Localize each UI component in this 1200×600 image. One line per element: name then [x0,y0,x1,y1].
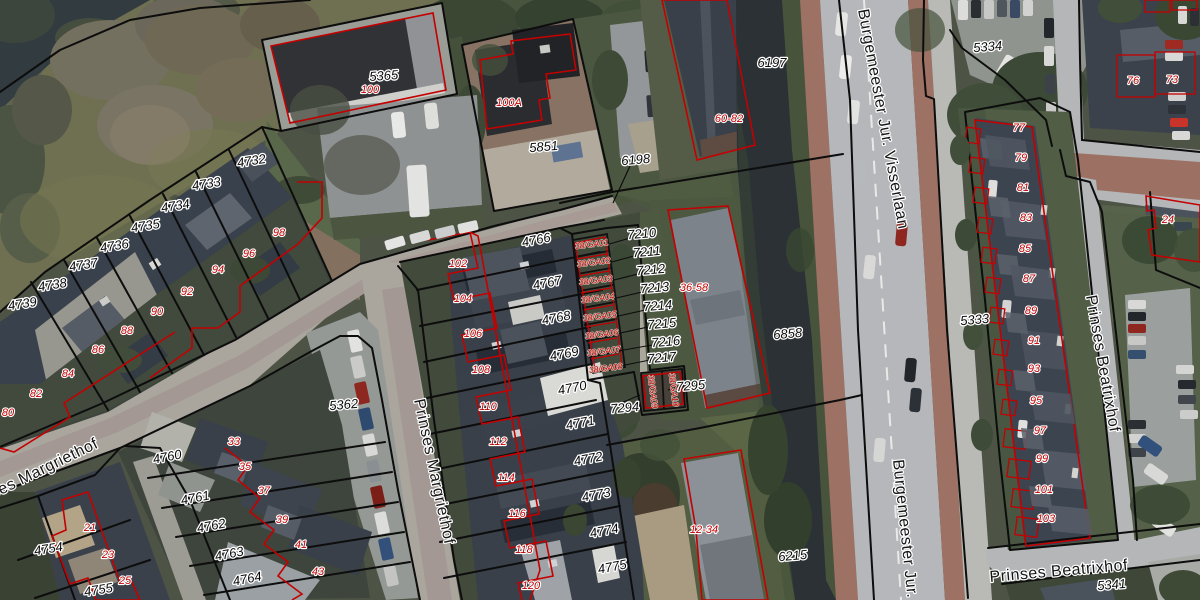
svg-text:5334: 5334 [973,38,1003,55]
svg-text:35: 35 [239,461,252,473]
svg-text:23: 23 [101,549,115,561]
svg-text:81: 81 [1017,182,1029,194]
svg-text:83: 83 [1020,212,1033,224]
svg-text:120: 120 [522,580,541,592]
svg-text:33: 33 [228,436,241,448]
svg-text:36-58: 36-58 [680,282,709,294]
svg-text:87: 87 [1023,273,1036,285]
svg-text:95: 95 [1030,395,1043,407]
svg-text:116: 116 [508,508,526,520]
svg-text:7212: 7212 [636,261,667,279]
svg-text:21: 21 [83,522,96,534]
svg-text:97: 97 [1034,425,1047,437]
svg-text:7216: 7216 [651,333,682,351]
svg-text:24: 24 [1161,214,1174,226]
svg-text:6197: 6197 [758,55,788,70]
svg-text:5365: 5365 [369,67,400,84]
svg-text:7294: 7294 [610,399,640,416]
svg-text:102: 102 [449,258,467,270]
svg-text:91: 91 [1028,335,1040,347]
svg-text:7215: 7215 [647,315,678,333]
svg-text:60-82: 60-82 [715,113,743,125]
svg-text:90: 90 [151,306,164,318]
svg-text:104: 104 [454,293,472,305]
svg-text:99: 99 [1036,453,1048,465]
svg-text:73: 73 [1166,74,1179,86]
svg-text:100A: 100A [496,97,522,109]
svg-text:41: 41 [295,539,307,551]
svg-text:5341: 5341 [1097,576,1127,593]
svg-text:7214: 7214 [643,297,673,314]
svg-text:94: 94 [212,264,224,276]
svg-text:106: 106 [464,328,483,340]
svg-text:43: 43 [312,566,325,578]
svg-text:39: 39 [276,514,288,526]
svg-text:110: 110 [479,401,497,413]
svg-text:92: 92 [181,286,193,298]
svg-text:84: 84 [62,368,74,380]
svg-text:5851: 5851 [529,138,559,155]
svg-text:118: 118 [515,544,533,556]
svg-text:7217: 7217 [647,349,678,367]
svg-text:12-34: 12-34 [690,524,718,536]
svg-text:85: 85 [1019,243,1032,255]
svg-text:88: 88 [121,325,134,337]
svg-text:37: 37 [258,485,271,497]
svg-text:7210: 7210 [627,225,658,243]
svg-text:25: 25 [118,575,132,587]
svg-text:5333: 5333 [960,311,991,329]
svg-text:82: 82 [30,388,42,400]
svg-text:7211: 7211 [632,243,661,260]
svg-text:77: 77 [1013,122,1026,134]
svg-text:89: 89 [1025,305,1037,317]
svg-text:6858: 6858 [773,325,804,343]
svg-text:6198: 6198 [621,151,652,169]
svg-text:96: 96 [243,248,256,260]
svg-text:80: 80 [2,407,15,419]
svg-text:112: 112 [489,436,507,448]
svg-text:103: 103 [1037,513,1056,525]
svg-text:98: 98 [273,227,286,239]
svg-text:76: 76 [1127,75,1140,87]
svg-text:79: 79 [1015,152,1027,164]
svg-text:101: 101 [1035,484,1053,496]
svg-text:5362: 5362 [329,396,360,414]
svg-text:100: 100 [361,84,380,96]
svg-text:86: 86 [92,344,105,356]
svg-text:93: 93 [1028,363,1041,375]
svg-text:6215: 6215 [778,547,809,565]
svg-text:7213: 7213 [640,279,671,297]
svg-text:108: 108 [472,364,491,376]
svg-text:114: 114 [497,472,515,484]
